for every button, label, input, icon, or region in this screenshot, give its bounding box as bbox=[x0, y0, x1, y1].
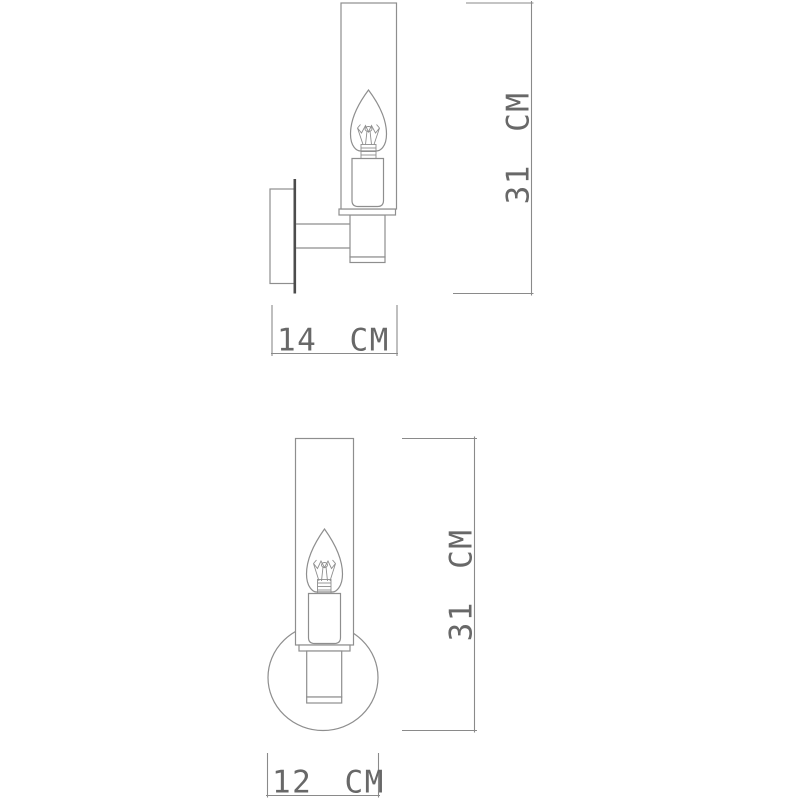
front-holder-cylinder bbox=[307, 651, 342, 697]
front-view-height-dimension: 31 CM bbox=[402, 437, 480, 733]
side-view-height-dimension: 31 CM bbox=[453, 1, 537, 296]
front-socket-flange bbox=[299, 645, 350, 651]
side-lamp-socket bbox=[352, 159, 384, 207]
front-width-label: 12 CM bbox=[272, 765, 385, 800]
side-height-label: 31 CM bbox=[501, 92, 537, 205]
technical-drawing-canvas: 31 CM 14 CM bbox=[0, 0, 800, 800]
front-view bbox=[268, 439, 378, 731]
front-view-width-dimension: 12 CM bbox=[266, 753, 385, 800]
side-view-width-dimension: 14 CM bbox=[271, 305, 398, 359]
sconce-drawing-svg: 31 CM 14 CM bbox=[0, 0, 800, 800]
side-socket-flange bbox=[339, 209, 396, 215]
front-lamp-socket bbox=[309, 594, 341, 644]
front-holder-cap bbox=[307, 697, 342, 703]
side-holder-cylinder bbox=[350, 215, 385, 257]
side-width-label: 14 CM bbox=[277, 323, 390, 359]
side-holder-cap bbox=[350, 257, 385, 263]
front-height-label: 31 CM bbox=[444, 529, 480, 642]
side-view bbox=[270, 3, 397, 294]
side-wall-plate bbox=[270, 189, 295, 284]
side-mounting-arm bbox=[296, 224, 352, 248]
